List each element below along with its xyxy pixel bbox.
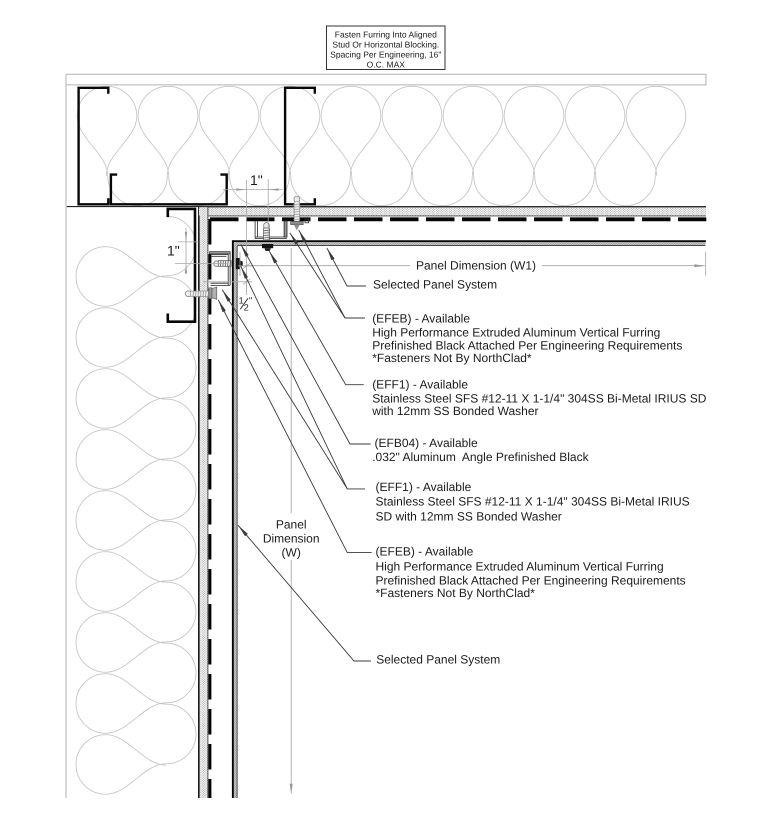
- svg-text:(EFEB) - Available: (EFEB) - Available: [372, 312, 470, 326]
- svg-text:": ": [249, 295, 252, 305]
- svg-text:SD with 12mm SS Bonded Washer: SD with 12mm SS Bonded Washer: [376, 510, 562, 524]
- svg-text:Selected Panel System: Selected Panel System: [373, 278, 497, 292]
- svg-text:with 12mm SS Bonded Washer: with 12mm SS Bonded Washer: [371, 404, 538, 418]
- svg-text:(EFF1) - Available: (EFF1) - Available: [376, 480, 472, 494]
- svg-text:Fasten Furring Into Aligned: Fasten Furring Into Aligned: [335, 29, 437, 39]
- svg-text:High Performance Extruded Alum: High Performance Extruded Aluminum Verti…: [372, 326, 660, 340]
- svg-text:(W): (W): [282, 546, 301, 560]
- svg-text:1": 1": [250, 172, 263, 188]
- svg-text:*Fasteners Not By NorthClad*: *Fasteners Not By NorthClad*: [376, 586, 536, 600]
- svg-text:.032" Aluminum Angle Prefinis: .032" Aluminum Angle Prefinished Black: [372, 450, 589, 464]
- svg-text:(EFF1) - Available: (EFF1) - Available: [372, 377, 468, 391]
- svg-text:Selected Panel System: Selected Panel System: [376, 653, 500, 667]
- svg-text:(EFB04) - Available: (EFB04) - Available: [375, 436, 478, 450]
- svg-text:Stainless Steel SFS #12-11 X 1: Stainless Steel SFS #12-11 X 1-1/4" 304S…: [376, 494, 690, 508]
- svg-text:(EFEB) - Available: (EFEB) - Available: [376, 544, 474, 558]
- svg-text:High Performance Extruded Alum: High Performance Extruded Aluminum Verti…: [376, 560, 664, 574]
- svg-text:Stud Or Horizontal Blocking.: Stud Or Horizontal Blocking.: [332, 39, 439, 49]
- svg-text:Panel Dimension (W1): Panel Dimension (W1): [416, 259, 536, 273]
- svg-text:Panel: Panel: [276, 517, 307, 531]
- svg-text:Dimension: Dimension: [263, 532, 320, 546]
- svg-text:1": 1": [167, 242, 180, 258]
- svg-text:Spacing Per Engineering, 16": Spacing Per Engineering, 16": [330, 50, 441, 60]
- svg-text:O.C. MAX: O.C. MAX: [367, 60, 406, 70]
- svg-text:*Fasteners Not By NorthClad*: *Fasteners Not By NorthClad*: [372, 351, 532, 365]
